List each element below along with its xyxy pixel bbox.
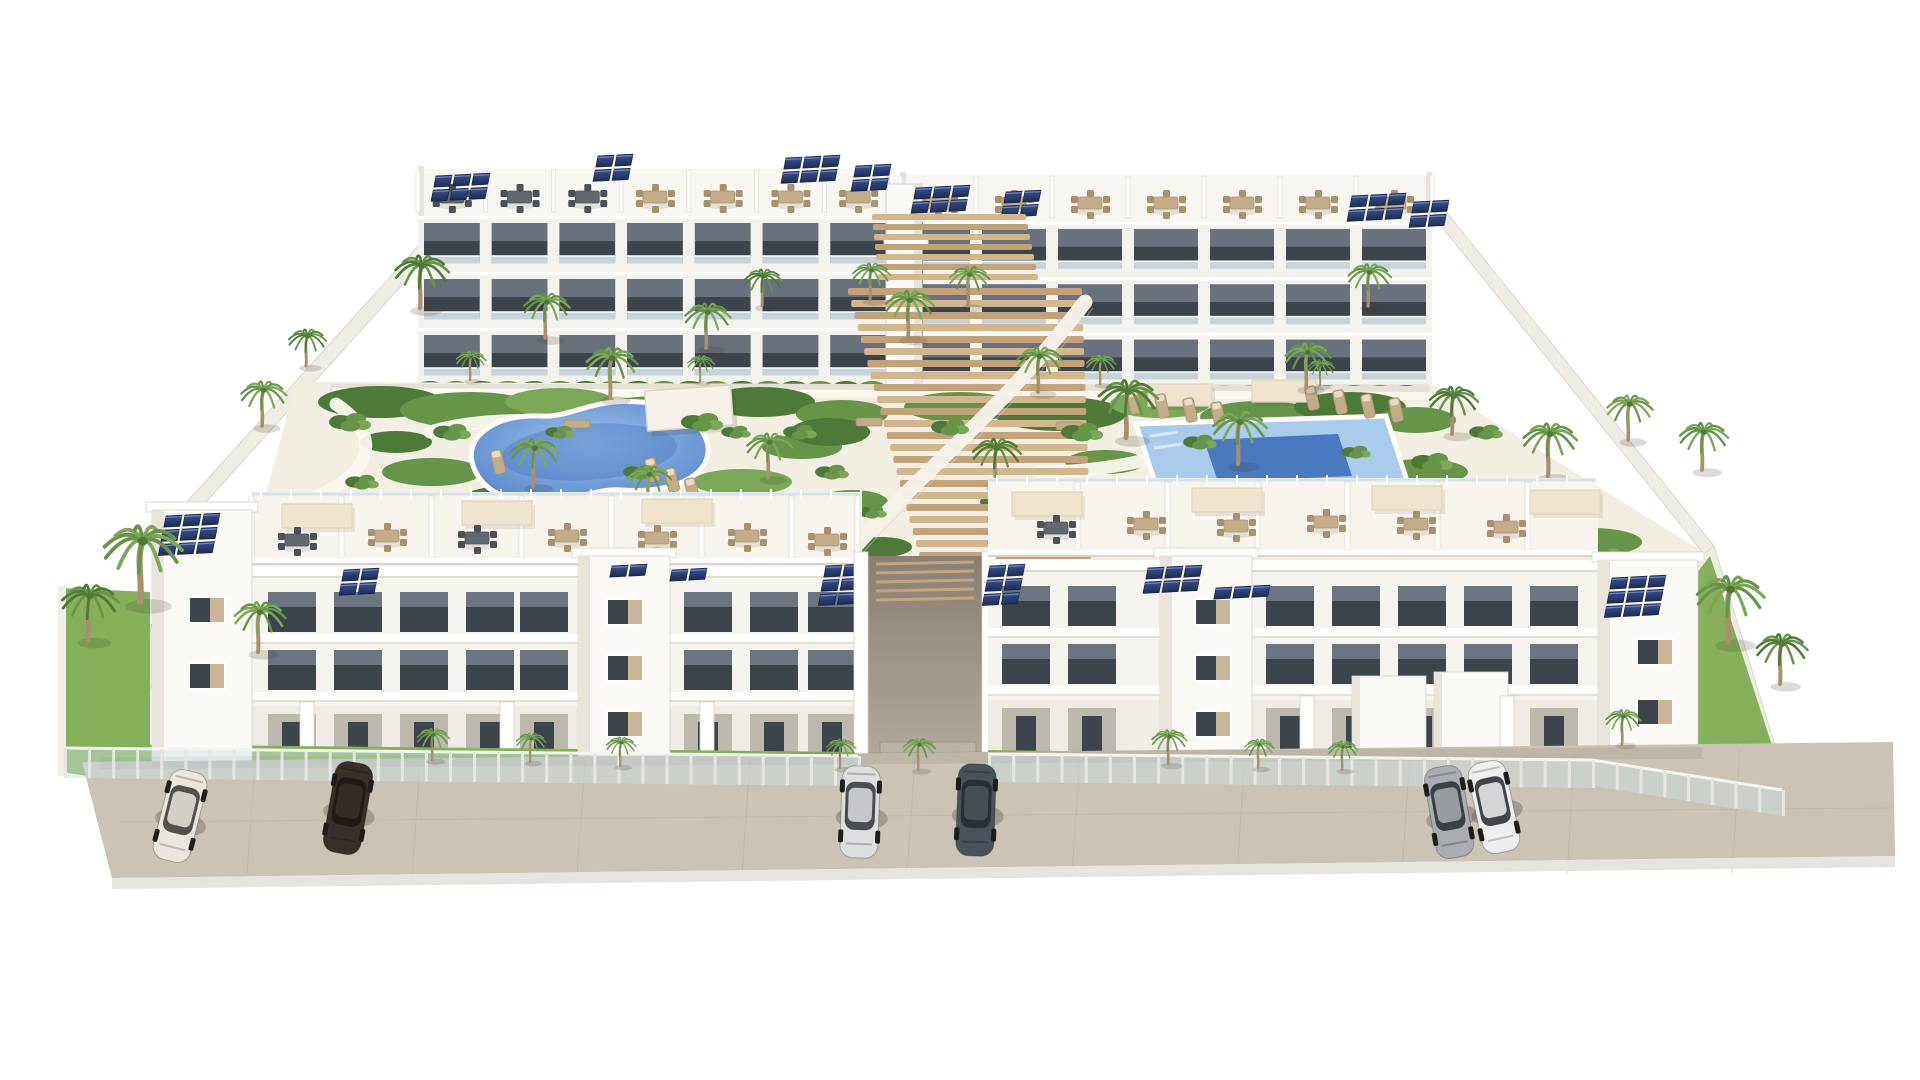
chair (803, 200, 810, 207)
dining-table (645, 532, 669, 544)
window-sheen (466, 650, 514, 665)
chair (1143, 511, 1150, 518)
chair (568, 190, 575, 197)
chair (1519, 530, 1526, 537)
solar-panel-highlight (360, 584, 376, 585)
railing-post (1356, 475, 1358, 485)
window-sheen (520, 592, 568, 607)
passage-stair-slat (876, 589, 974, 591)
chair (840, 543, 847, 550)
chair (1249, 529, 1256, 536)
dining-table (1044, 522, 1068, 534)
front-apartment-block-left (58, 489, 862, 790)
solar-panel-highlight (1433, 202, 1449, 203)
chair (1503, 514, 1510, 521)
solar-panel-highlight (1186, 567, 1202, 568)
fence-post (593, 753, 596, 783)
chair (728, 539, 735, 546)
terrace-partition-fin (1525, 482, 1530, 550)
solar-panel-highlight (913, 203, 929, 204)
palm-shadow (695, 381, 711, 386)
chair (517, 184, 524, 191)
solar-panel-highlight (1390, 195, 1406, 196)
balcony-glass (627, 279, 683, 297)
balcony-glass (1286, 229, 1350, 247)
solar-panel-highlight (1025, 192, 1041, 193)
fence-post (401, 751, 404, 781)
fence-post (136, 749, 139, 779)
balcony-glass (424, 335, 480, 353)
balcony-railing (627, 368, 683, 376)
chair (1217, 529, 1224, 536)
dining-table (1306, 197, 1330, 209)
chair (704, 200, 711, 207)
chair (668, 190, 675, 197)
palm-crown-center (1341, 745, 1345, 748)
fence-post (641, 754, 644, 784)
solar-panel-highlight (631, 566, 647, 567)
tower-window (1196, 600, 1216, 624)
chair (474, 547, 481, 554)
balcony-glass (1210, 284, 1274, 302)
pergola-fin (1202, 176, 1206, 218)
chair (1179, 206, 1186, 213)
dining-table (1314, 516, 1338, 528)
stair-slat (854, 312, 1082, 319)
chair (1413, 511, 1420, 518)
palm-crown-center (1701, 430, 1707, 435)
fence-post (666, 754, 669, 784)
shrub (354, 481, 370, 490)
chair (1487, 530, 1494, 537)
palm-crown-center (1627, 402, 1633, 407)
fence-post (1230, 756, 1233, 784)
railing-post (1026, 475, 1028, 485)
pergola-fin (416, 170, 420, 212)
palm-crown-center (1124, 389, 1132, 396)
palm-shadow (1030, 390, 1057, 399)
car-wheel (991, 829, 996, 842)
palm-crown-center (994, 446, 1000, 451)
palm-shadow (961, 305, 985, 313)
chair (704, 190, 711, 197)
fence-post (1302, 757, 1305, 785)
chair (294, 549, 301, 556)
chair (824, 549, 831, 556)
shrub (792, 431, 808, 440)
balcony-railing (492, 368, 548, 376)
fence-post (1326, 757, 1329, 785)
window-shutter-panel (210, 598, 224, 622)
palm-crown-center (86, 593, 93, 599)
window-sheen (1530, 586, 1578, 601)
palm-crown-center (761, 275, 766, 279)
fence-post (714, 755, 717, 785)
palm-crown-center (529, 737, 533, 740)
solar-panel-highlight (1022, 206, 1038, 207)
balcony-glass (559, 279, 615, 297)
solar-panel-highlight (802, 172, 818, 173)
solar-panel-highlight (1006, 193, 1022, 194)
chair (1331, 206, 1338, 213)
pergola-fin (1050, 176, 1054, 218)
window-sheen (1530, 644, 1578, 659)
railing-post (1146, 475, 1148, 485)
chair (1339, 515, 1346, 522)
passage-stair-slat (876, 580, 974, 582)
tower-window (1196, 712, 1216, 736)
solar-panel-highlight (1254, 587, 1270, 588)
solar-panel-highlight (185, 516, 201, 517)
balcony-railing (1210, 261, 1274, 269)
solar-panel-highlight (805, 158, 821, 159)
chair (728, 529, 735, 536)
solar-panel-array (1604, 575, 1666, 617)
palm-shadow (537, 336, 564, 345)
scene-layers (0, 0, 1920, 1080)
window-sheen (520, 650, 568, 665)
shrub (1422, 461, 1442, 472)
fence-post (1133, 755, 1136, 783)
fence-post (208, 749, 211, 779)
railing-post (530, 489, 532, 499)
solar-panel-highlight (984, 595, 1000, 596)
shade-canopy (642, 499, 712, 523)
fence-post (569, 753, 572, 783)
stair-slat (858, 324, 1084, 331)
chair (584, 184, 591, 191)
balcony-railing (763, 256, 819, 264)
car-wheel (838, 829, 843, 842)
palm-crown-center (469, 355, 473, 358)
solar-panel-highlight (344, 571, 360, 572)
railing-post (1446, 475, 1448, 485)
chair (501, 200, 508, 207)
dining-table (1134, 518, 1158, 530)
railing-post (996, 475, 998, 485)
chair (1239, 212, 1246, 219)
chair (465, 200, 472, 207)
dining-table (1078, 197, 1102, 209)
palm-crown-center (839, 743, 843, 746)
chair (771, 190, 778, 197)
railing-post (1086, 475, 1088, 485)
railing-post (770, 489, 772, 499)
solar-panel-highlight (872, 180, 888, 181)
window-sheen (684, 650, 732, 665)
window-shutter-panel (628, 712, 642, 736)
balcony-glass (1210, 340, 1274, 358)
railing-post (740, 489, 742, 499)
chair (600, 200, 607, 207)
fence-post (281, 750, 284, 780)
car-wheel (954, 827, 959, 840)
stair-slat (874, 384, 1085, 391)
fence-post (1060, 755, 1063, 783)
terrace-partition-fin (1165, 482, 1170, 550)
palm-crown-center (699, 360, 703, 363)
chair (1147, 206, 1154, 213)
window-sheen (1398, 644, 1446, 659)
chair (636, 190, 643, 197)
passage-stair-slat (876, 598, 974, 600)
balcony-glass (492, 279, 548, 297)
chair (294, 527, 301, 534)
solar-panel-highlight (1625, 606, 1641, 607)
palm-shadow (426, 759, 445, 765)
window-sheen (1068, 644, 1116, 659)
tower-window (1196, 656, 1216, 680)
balcony-glass (627, 335, 683, 353)
fence-post (256, 750, 259, 780)
chair (449, 206, 456, 213)
chair (368, 539, 375, 546)
chair (1323, 531, 1330, 538)
fence-post (1036, 754, 1039, 782)
chair (1127, 517, 1134, 524)
railing-post (290, 489, 292, 499)
railing-post (650, 489, 652, 499)
balcony-railing (559, 312, 615, 320)
dining-table (643, 191, 667, 203)
solar-panel-highlight (1164, 582, 1180, 583)
tower-window (608, 600, 628, 624)
shrub (443, 431, 461, 441)
window-sheen (400, 592, 448, 607)
palm-shadow (1315, 385, 1331, 390)
balcony-glass (763, 223, 819, 241)
solar-panel-highlight (614, 170, 630, 171)
solar-panel-highlight (987, 581, 1003, 582)
railing-post (260, 489, 262, 499)
railing-post (1596, 475, 1598, 485)
palm-shadow (899, 336, 928, 345)
palm-shadow (698, 346, 725, 355)
passage-wall (854, 552, 868, 776)
railing-post (1506, 475, 1508, 485)
balcony-railing (1362, 372, 1426, 380)
chair (652, 206, 659, 213)
balcony-railing (627, 256, 683, 264)
solar-panel-highlight (1003, 594, 1019, 595)
fence-post (473, 752, 476, 782)
palm-crown-center (1237, 419, 1244, 425)
fence-post (1399, 758, 1402, 786)
balcony-railing (1058, 261, 1122, 269)
chair (278, 543, 285, 550)
palm-shadow (410, 306, 442, 316)
palm-crown-center (869, 269, 874, 273)
dining-table (735, 530, 759, 542)
balcony-railing (695, 256, 751, 264)
car-hood-line (847, 774, 875, 775)
chair (278, 533, 285, 540)
dining-table (575, 191, 599, 203)
passage-stair-slat (876, 571, 974, 573)
chair (1223, 206, 1230, 213)
solar-panel-highlight (1368, 210, 1384, 211)
fence-post (305, 750, 308, 780)
window-sheen (1398, 586, 1446, 601)
car-roof (848, 788, 873, 823)
chair (1397, 527, 1404, 534)
palm-crown-center (138, 537, 148, 546)
palm-shadow (1693, 468, 1722, 477)
palm-shadow (249, 650, 279, 660)
chair (600, 190, 607, 197)
chair (580, 529, 587, 536)
dining-table (1494, 521, 1518, 533)
palm-crown-center (917, 743, 921, 747)
fence-post (112, 748, 115, 778)
window-sheen (1266, 586, 1314, 601)
solar-panel-highlight (1411, 217, 1427, 218)
palm-crown-center (1257, 743, 1261, 746)
palm-shadow (1228, 462, 1260, 472)
dining-table (375, 530, 399, 542)
fence-post (1109, 755, 1112, 783)
window-shutter-panel (1216, 600, 1230, 624)
fence-post (1012, 754, 1015, 782)
car-wheel (956, 777, 961, 790)
palm-crown-center (1305, 350, 1311, 355)
balcony-railing (763, 312, 819, 320)
chair (1037, 531, 1044, 538)
pergola-fin (1278, 176, 1282, 218)
stair-slat (848, 288, 1082, 295)
balcony-glass (763, 335, 819, 353)
chair (760, 539, 767, 546)
window-sheen (268, 592, 316, 607)
window-shutter-panel (1216, 656, 1230, 680)
palm-shadow (1115, 436, 1150, 447)
palm-crown-center (619, 741, 623, 744)
chair (1143, 533, 1150, 540)
palm-shadow (524, 484, 553, 493)
garden-bed (382, 458, 482, 486)
window-sheen (1002, 644, 1050, 659)
window-shutter-panel (628, 656, 642, 680)
window-shutter-panel (210, 664, 224, 688)
facade-parapet (1252, 560, 1598, 570)
palm-shadow (1620, 438, 1647, 447)
stair-slat (874, 234, 1030, 240)
palm-crown-center (1779, 641, 1786, 647)
solar-panel-highlight (595, 171, 611, 172)
balcony-railing (1286, 317, 1350, 325)
railing-post (1116, 475, 1118, 485)
dining-table (1404, 518, 1428, 530)
car-trunk-line (962, 842, 988, 843)
solar-panel-highlight (598, 157, 614, 158)
fence-post (1278, 757, 1281, 785)
chair (808, 543, 815, 550)
fence-post (1181, 756, 1184, 784)
shrub (941, 426, 959, 436)
solar-panel-highlight (935, 188, 951, 189)
chair (1519, 520, 1526, 527)
chair (384, 523, 391, 530)
chair (720, 206, 727, 213)
balcony-glass (1362, 229, 1426, 247)
stair-slat (887, 432, 1087, 439)
railing-post (350, 489, 352, 499)
palm-shadow (126, 599, 172, 614)
bench (856, 418, 882, 426)
solar-panel-highlight (1387, 209, 1403, 210)
chair (400, 529, 407, 536)
solar-panel-highlight (1647, 591, 1663, 592)
fence-post (1687, 775, 1690, 801)
car-roof (964, 786, 989, 821)
solar-panel-highlight (820, 595, 836, 596)
solar-panel-highlight (856, 167, 872, 168)
fence-post (449, 752, 452, 782)
fence-post (160, 749, 163, 779)
solar-panel-highlight (201, 529, 217, 530)
chair (871, 190, 878, 197)
fence-post (1544, 760, 1547, 788)
balcony-glass (1362, 340, 1426, 358)
railing-post (590, 489, 592, 499)
chair (787, 206, 794, 213)
solar-panel-highlight (617, 156, 633, 157)
shrub (729, 431, 743, 439)
palm-crown-center (419, 263, 426, 269)
solar-panel-highlight (452, 190, 468, 191)
solar-panel-highlight (691, 570, 707, 571)
tower-window (190, 664, 210, 688)
tower-window (608, 656, 628, 680)
chair (736, 200, 743, 207)
balcony-glass (1362, 284, 1426, 302)
shade-canopy (1012, 492, 1082, 516)
chair (995, 206, 1002, 213)
palm-shadow (1616, 743, 1637, 750)
chair (458, 531, 465, 538)
chair (654, 525, 661, 532)
solar-panel-highlight (1628, 592, 1644, 593)
chair (384, 545, 391, 552)
pergola-fin (551, 170, 555, 212)
dining-table (1224, 520, 1248, 532)
balcony-railing (1286, 261, 1350, 269)
railing-post (830, 489, 832, 499)
chair (1069, 531, 1076, 538)
shade-canopy (282, 504, 352, 528)
tower-window (1638, 640, 1658, 664)
chair (580, 539, 587, 546)
shrub (553, 431, 567, 439)
balcony-railing (1134, 261, 1198, 269)
shrub (340, 421, 360, 432)
balcony-railing (763, 368, 819, 376)
shrub (1072, 431, 1092, 442)
chair (1037, 521, 1044, 528)
solar-panel-highlight (166, 517, 182, 518)
terrace-partition-fin (789, 496, 794, 558)
chair (720, 184, 727, 191)
shrub (865, 511, 879, 519)
solar-panel-highlight (951, 201, 967, 202)
window-sheen (1464, 644, 1512, 659)
fence-post (1568, 760, 1571, 788)
palm-crown-center (257, 609, 264, 615)
balcony-railing (492, 312, 548, 320)
chair (744, 523, 751, 530)
balcony-railing (1210, 317, 1274, 325)
window-shutter-panel (1216, 712, 1230, 736)
